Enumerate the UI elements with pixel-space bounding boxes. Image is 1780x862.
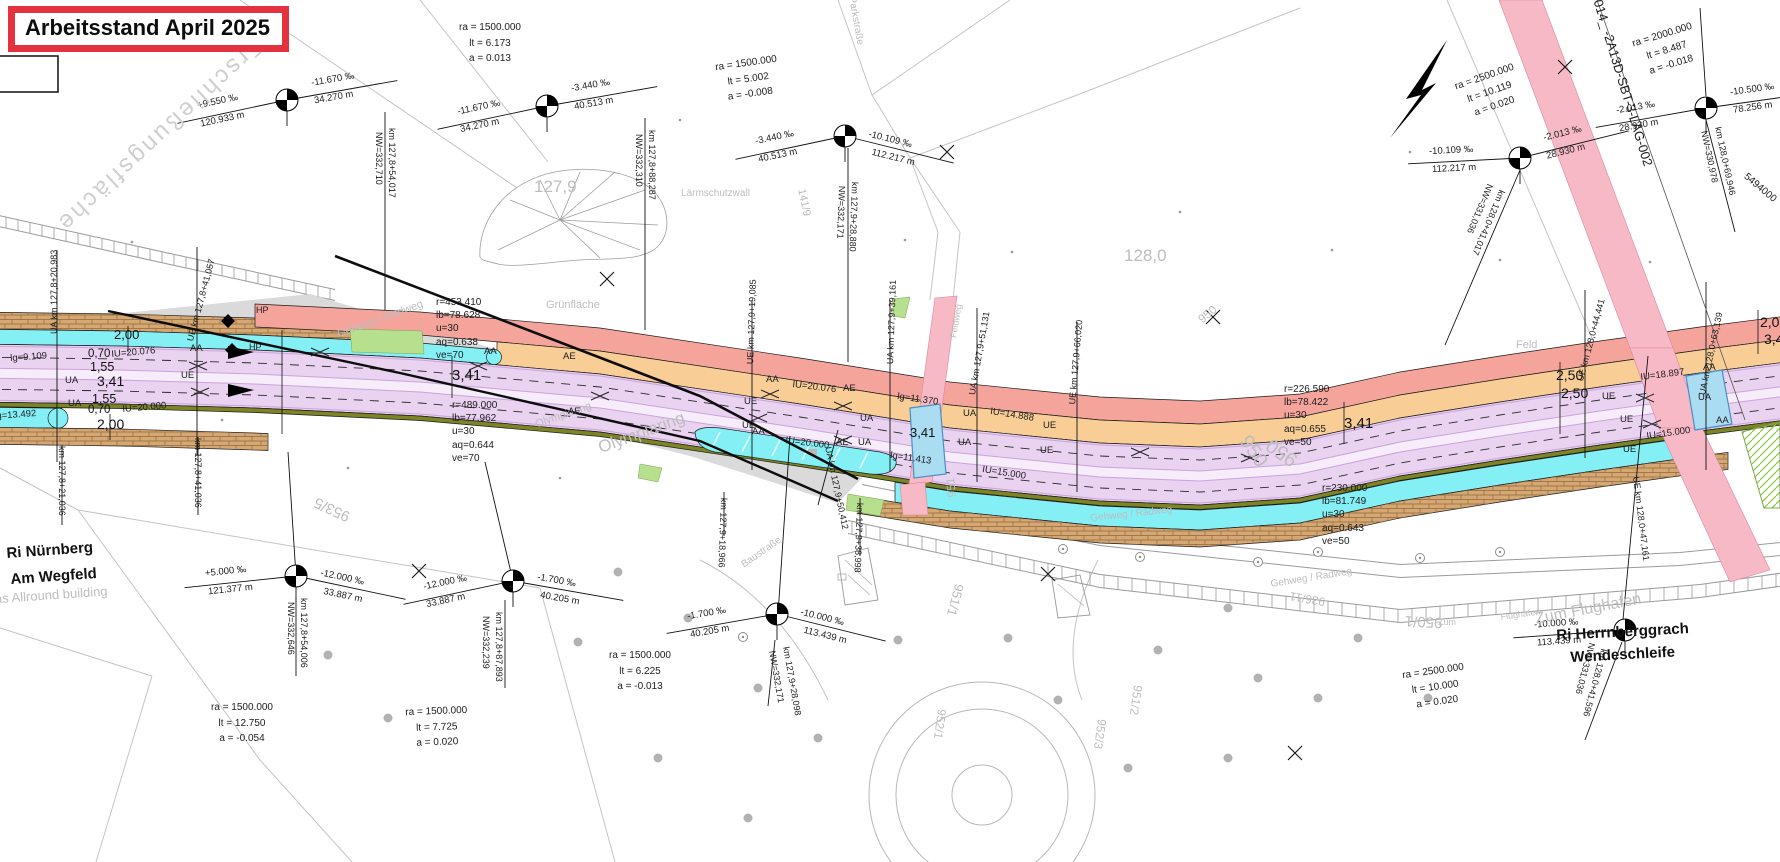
north-arrow-icon <box>1390 40 1447 138</box>
tree-dot <box>654 754 663 763</box>
tree-dot <box>574 638 583 647</box>
tree-dot <box>1124 764 1133 773</box>
survey-point <box>1499 259 1502 262</box>
survey-point <box>221 419 224 422</box>
tree-dot <box>1354 634 1363 643</box>
survey-point <box>1011 251 1014 254</box>
tree-dot <box>1424 694 1433 703</box>
survey-point <box>1409 151 1412 154</box>
grid-cross-icon <box>1206 310 1220 324</box>
survey-point <box>559 477 562 480</box>
tree-dot <box>1154 646 1163 655</box>
green-hatch-area <box>1742 422 1780 508</box>
grid-cross-icon <box>412 564 426 578</box>
survey-point <box>904 239 907 242</box>
noise-barrier-mound <box>480 169 667 265</box>
tree-dot <box>1004 634 1013 643</box>
grid-cross-icon <box>940 145 954 159</box>
survey-point <box>1331 249 1334 252</box>
tree-dot <box>1054 696 1063 705</box>
tree-dot <box>814 734 823 743</box>
tree-dot <box>384 714 393 723</box>
survey-point <box>1179 211 1182 214</box>
status-stamp: Arbeitsstand April 2025 <box>8 6 289 52</box>
survey-point <box>679 119 682 122</box>
building-outline <box>0 56 58 92</box>
tree-dot <box>1254 674 1263 683</box>
plan-drawing <box>0 0 1780 862</box>
survey-point <box>1649 261 1652 264</box>
tree-dot <box>754 684 763 693</box>
tree-dot <box>614 568 623 577</box>
survey-point <box>347 467 350 470</box>
grid-cross-icon <box>600 272 614 286</box>
tree-dot <box>1224 754 1233 763</box>
site-plan-canvas: +9.550 ‰120.933 m-11.670 ‰34.270 m-11.67… <box>0 0 1780 862</box>
tree-dot <box>1224 604 1233 613</box>
tree-dot <box>684 614 693 623</box>
tree-dot <box>324 651 333 660</box>
status-stamp-text: Arbeitsstand April 2025 <box>25 15 270 40</box>
tree-dot <box>744 814 753 823</box>
tree-dot <box>894 636 903 645</box>
tree-dot <box>1314 694 1323 703</box>
grid-cross-icon <box>1288 746 1302 760</box>
survey-point <box>131 241 134 244</box>
